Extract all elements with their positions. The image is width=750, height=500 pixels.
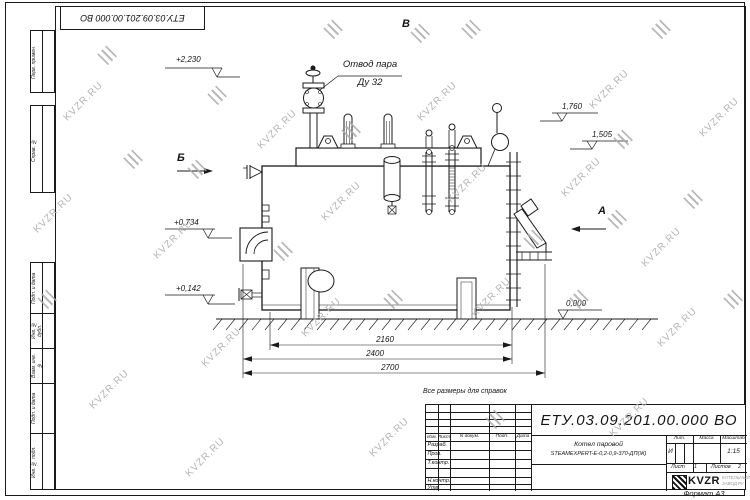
grid-line (31, 313, 54, 314)
view-label-a: А (598, 206, 606, 217)
side-label: Подп. и дата (31, 265, 42, 311)
kvzr-logo-icon (672, 475, 687, 490)
tb-sheet-value: 1 (694, 465, 697, 470)
dimension-2700: 2700 (360, 364, 420, 372)
format-label: Формат А3 (664, 490, 744, 498)
grid-line (426, 412, 531, 413)
tb-col-data: Дата (515, 435, 531, 440)
reference-note: Все размеры для справок (423, 388, 507, 395)
side-label: Перв. примен. (31, 35, 42, 90)
tb-brand-sub2: ЗАВОД.РУ (722, 482, 744, 486)
side-box-sprav-no: Справ. № (30, 105, 55, 193)
grid-line (31, 433, 54, 434)
tb-sheet-label: Лист (671, 465, 685, 470)
tb-scale-value: 1:15 (720, 449, 747, 456)
side-box-perv-primen: Перв. примен. (30, 30, 55, 93)
tb-col-ndokum: N докум. (450, 435, 489, 440)
grid-line (675, 443, 676, 463)
tb-role-tkontr: Т.контр. (428, 461, 450, 466)
grid-line (42, 106, 43, 192)
elevation-ground: 0,000 (566, 300, 586, 308)
grid-line (42, 31, 43, 92)
side-label: Взам. инв. № (31, 350, 42, 381)
grid-line (31, 348, 54, 349)
tb-mass-label: Масса (693, 437, 720, 442)
tb-role-prov: Пров. (428, 452, 442, 457)
grid-line (426, 468, 531, 469)
tb-col-list: Лист (438, 435, 450, 440)
grid-line (426, 419, 531, 420)
tb-lit-label: Лит. (666, 437, 693, 442)
elevation-right-upper: 1,760 (562, 103, 582, 111)
side-label: Подп. и дата (31, 385, 42, 431)
side-box-lower: Подп. и дата Инв. № дубл. Взам. инв. № П… (30, 262, 55, 490)
tb-col-izm: Изм. (426, 435, 438, 440)
callout-steam-outlet-line1: Отвод пара (334, 60, 406, 70)
elevation-top: +2,230 (176, 56, 201, 64)
tb-brand-name: KVZR (688, 476, 720, 487)
dimension-2400: 2400 (345, 350, 405, 358)
dimension-2160: 2160 (355, 336, 415, 344)
tb-role-razrab: Разраб. (428, 443, 448, 448)
tb-scale-label: Масштаб (720, 437, 747, 442)
grid-line (31, 383, 54, 384)
grid-line (426, 450, 531, 451)
tb-role-utv: Утв. (428, 486, 440, 491)
grid-line (426, 426, 531, 427)
tb-doc-number: ЕТУ.03.09.201.00.000 ВО (531, 413, 747, 428)
grid-line (666, 443, 747, 444)
side-label: Инв. № подл. (31, 435, 42, 489)
grid-line (42, 263, 43, 489)
tb-sheets-label: Листов (711, 465, 731, 470)
tb-col-podp: Подп. (489, 435, 515, 440)
tb-sheets-value: 2 (738, 465, 741, 470)
elevation-right-lower: 1,505 (592, 131, 612, 139)
grid-line (684, 443, 685, 463)
callout-steam-outlet-line2: Ду 32 (334, 78, 406, 88)
side-label: Инв. № дубл. (31, 315, 42, 346)
tb-lit-value: И (666, 449, 675, 456)
drawing-sheet: ЕТУ.03.09.201.00.000 ВО Перв. примен. Сп… (0, 0, 750, 500)
elevation-left-upper: +0,734 (174, 219, 199, 227)
top-left-stamp: ЕТУ.03.09.201.00.000 ВО (60, 6, 205, 30)
tb-product-line1: Котел паровой (531, 442, 666, 449)
title-block: Изм. Лист N докум. Подп. Дата Разраб. Пр… (425, 404, 746, 490)
grid-line (666, 472, 747, 473)
elevation-left-lower: +0,142 (176, 285, 201, 293)
tb-brand-sub1: КОТЕЛЬНЫЙ (722, 476, 750, 480)
view-label-v: В (402, 19, 410, 30)
tb-product-line2: STEAMEXPERT-Е-0,2-0,9-370-ДП(Ж) (531, 452, 666, 458)
tb-role-nkontr: Н.контр. (428, 479, 451, 484)
top-left-stamp-number: ЕТУ.03.09.201.00.000 ВО (61, 13, 204, 23)
grid-line (426, 484, 531, 485)
grid-line (515, 405, 516, 491)
grid-line (706, 463, 707, 472)
grid-line (489, 405, 490, 491)
side-label: Справ. № (31, 116, 42, 184)
view-label-b: Б (177, 153, 185, 164)
grid-line (531, 464, 666, 465)
